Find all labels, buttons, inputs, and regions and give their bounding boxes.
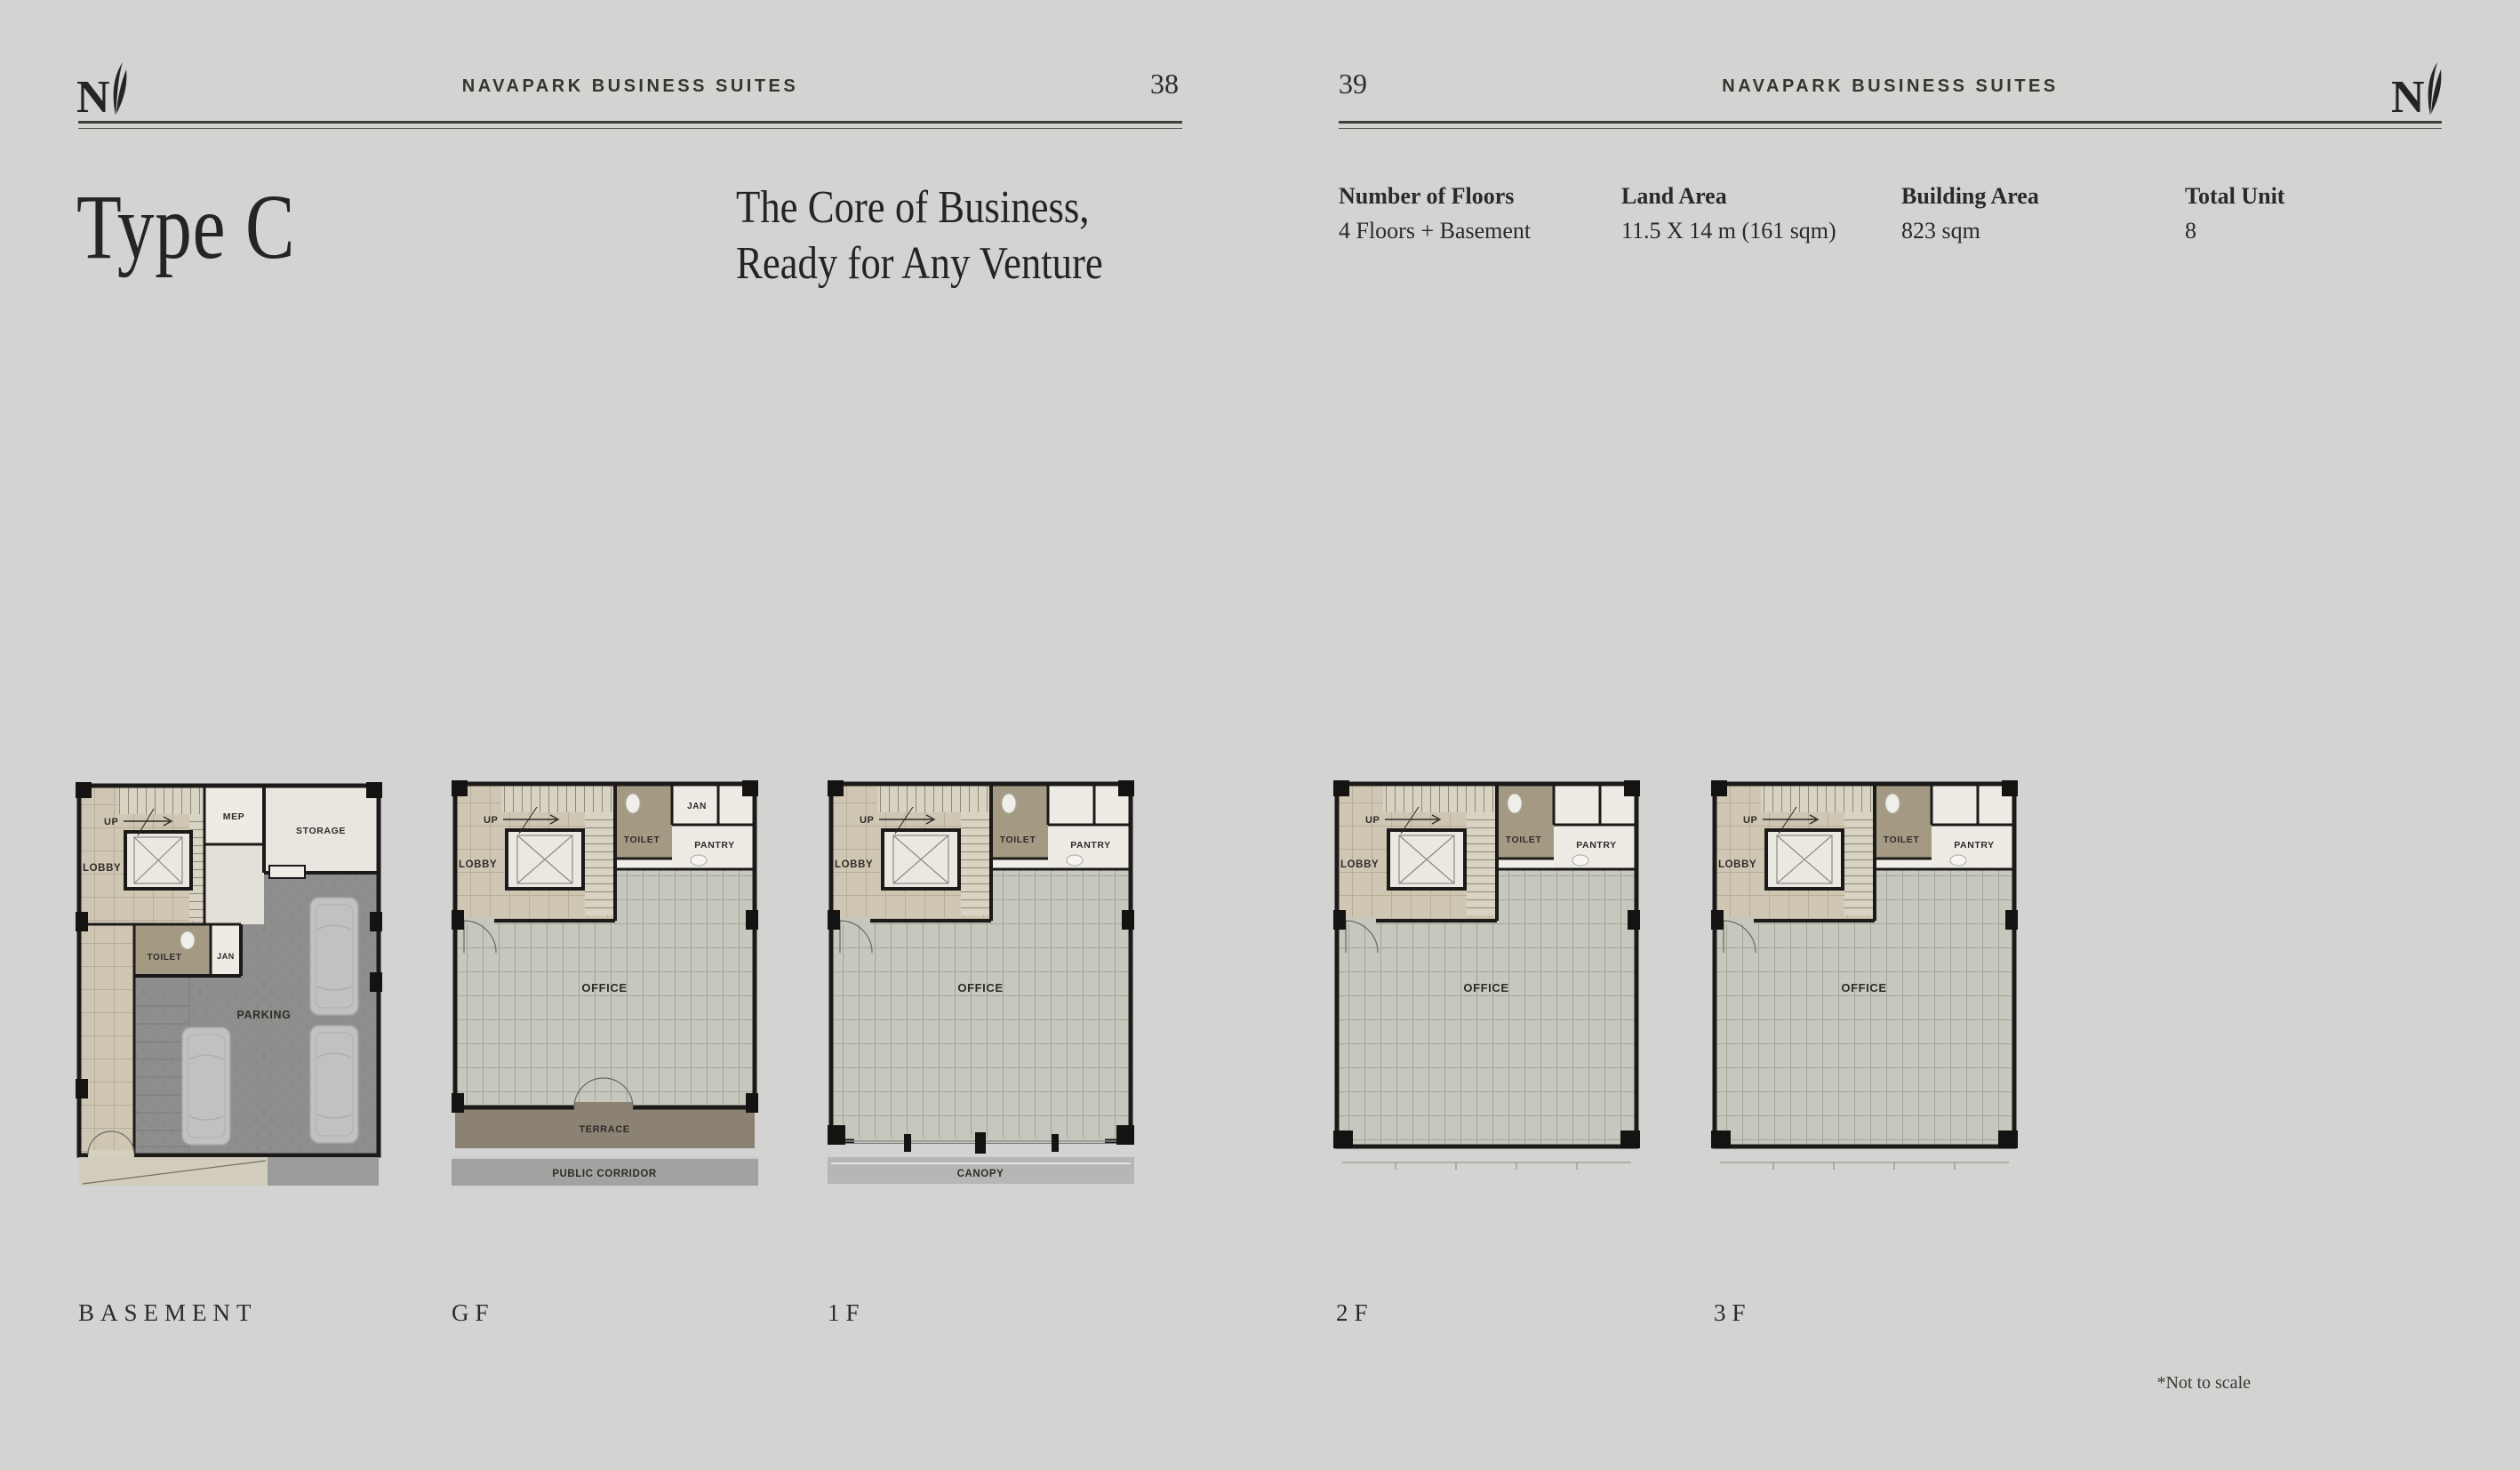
corridor-edge [452,1157,758,1159]
pantry-sink [1572,855,1588,866]
office-label: OFFICE [1463,981,1508,995]
spec-building-area: Building Area 823 sqm [1901,183,2039,244]
apron-right [268,1157,379,1186]
toilet-label: TOILET [1506,835,1542,845]
dimension-ticks [1720,1162,2009,1170]
spec-total-unit: Total Unit 8 [2185,183,2284,244]
up-label: UP [860,815,874,826]
sink-corridor [615,859,672,869]
brand-logo-right: N [2391,60,2453,124]
sink-corridor [1497,859,1554,869]
stair-treads-side [1844,812,1875,915]
lobby-label: LOBBY [835,859,873,870]
jan-room [1048,784,1094,825]
toilet-fixture [180,931,195,949]
mep-label: MEP [223,811,245,822]
sink-corridor [1875,859,1932,869]
brand-left: NAVAPARK BUSINESS SUITES [78,76,1182,97]
spec-number-of-floors: Number of Floors 4 Floors + Basement [1339,183,1531,244]
toilet-fixture [1885,794,1900,813]
up-label: UP [1365,815,1380,826]
logo-n: N [2391,72,2425,123]
toilet-label: TOILET [148,953,182,963]
storage-label: STORAGE [296,826,346,836]
stair-treads [877,784,991,812]
floor-plan-3f: UP LOBBY TOILET PANTRY OFFICE [1711,780,2018,1187]
up-label: UP [104,817,118,827]
up-label: UP [484,815,498,826]
toilet-label: TOILET [624,835,660,845]
storage-niche [269,866,305,878]
public-corridor-label: PUBLIC CORRIDOR [552,1169,657,1179]
brand-right: NAVAPARK BUSINESS SUITES [1339,76,2442,97]
canopy-label: CANOPY [957,1169,1004,1179]
lobby-label: LOBBY [459,859,497,870]
corridor [204,844,264,924]
up-label: UP [1743,815,1757,826]
spec-value: 823 sqm [1901,218,2039,244]
jan-room [1554,784,1600,825]
page-number-left: 38 [1150,68,1179,100]
header-rule-right [1339,121,2442,129]
parked-car [182,1027,230,1145]
pantry-label: PANTRY [1070,840,1111,851]
floor-plan-2f: UP LOBBY TOILET PANTRY OFFICE [1333,780,1640,1187]
jan-label: JAN [217,952,235,961]
caption-1f: 1F [828,1299,866,1327]
toilet-fixture [1002,794,1016,813]
lobby-label: LOBBY [1718,859,1756,870]
caption-3f: 3F [1714,1299,1752,1327]
office-label: OFFICE [581,981,627,995]
toilet-room [1497,784,1554,859]
spec-value: 11.5 X 14 m (161 sqm) [1621,218,1836,244]
caption-2f: 2F [1336,1299,1374,1327]
spec-label: Land Area [1621,183,1836,210]
jan-room [211,924,241,976]
tagline-line1: The Core of Business, [736,180,1103,236]
stair-treads-side [585,812,615,915]
terrace-label: TERRACE [579,1124,629,1135]
toilet-fixture [1508,794,1522,813]
floor-plan-gf: UP LOBBY TOILET JAN PANTRY OFFICE TERRAC… [452,780,758,1187]
pantry-label: PANTRY [1954,840,1995,851]
parked-car [310,1026,358,1143]
spec-label: Total Unit [2185,183,2284,210]
spec-label: Number of Floors [1339,183,1531,210]
spec-label: Building Area [1901,183,2039,210]
terrace-door-gap [574,1102,633,1111]
lobby-label: LOBBY [1340,859,1379,870]
parked-car [310,898,358,1015]
stair-treads [1383,784,1497,812]
page-title: Type C [76,181,295,274]
toilet-room [1875,784,1932,859]
driveway-strip [79,924,134,1155]
floor-plan-basement: UP LOBBY MEP STORAGE TOILET JAN PARKING [76,782,382,1189]
apron-left [79,1157,268,1186]
pantry-label: PANTRY [1576,840,1617,851]
toilet-room [615,784,672,859]
jan-label: JAN [687,802,707,811]
pantry-sink [691,855,707,866]
pantry-sink [1950,855,1966,866]
office-label: OFFICE [1841,981,1886,995]
canopy-line [831,1162,1131,1164]
stair-treads [118,786,204,814]
tagline-line2: Ready for Any Venture [736,236,1103,292]
parking-label: PARKING [237,1009,292,1021]
stair-treads-side [1467,812,1497,915]
toilet-label: TOILET [1000,835,1036,845]
toilet-label: TOILET [1884,835,1920,845]
pantry-label: PANTRY [694,840,735,851]
pantry-sink [1067,855,1083,866]
dimension-ticks [1342,1162,1631,1170]
jan-room [1932,784,1978,825]
toilet-room [991,784,1048,859]
spec-land-area: Land Area 11.5 X 14 m (161 sqm) [1621,183,1836,244]
stair-treads-side [961,812,991,915]
stair-treads [1761,784,1875,812]
header-rule-left [78,121,1182,129]
tagline: The Core of Business, Ready for Any Vent… [736,180,1103,292]
sink-corridor [991,859,1048,869]
caption-basement: BASEMENT [78,1299,258,1327]
floor-plan-1f: UP LOBBY TOILET PANTRY OFFICE CANOPY [828,780,1134,1187]
spec-value: 4 Floors + Basement [1339,218,1531,244]
toilet-fixture [626,794,640,813]
caption-gf: GF [452,1299,495,1327]
spec-value: 8 [2185,218,2284,244]
stair-treads [501,784,615,812]
toilet-room [134,924,211,976]
not-to-scale-note: *Not to scale [2071,1373,2251,1394]
office-label: OFFICE [957,981,1003,995]
lobby-label: LOBBY [83,863,121,874]
